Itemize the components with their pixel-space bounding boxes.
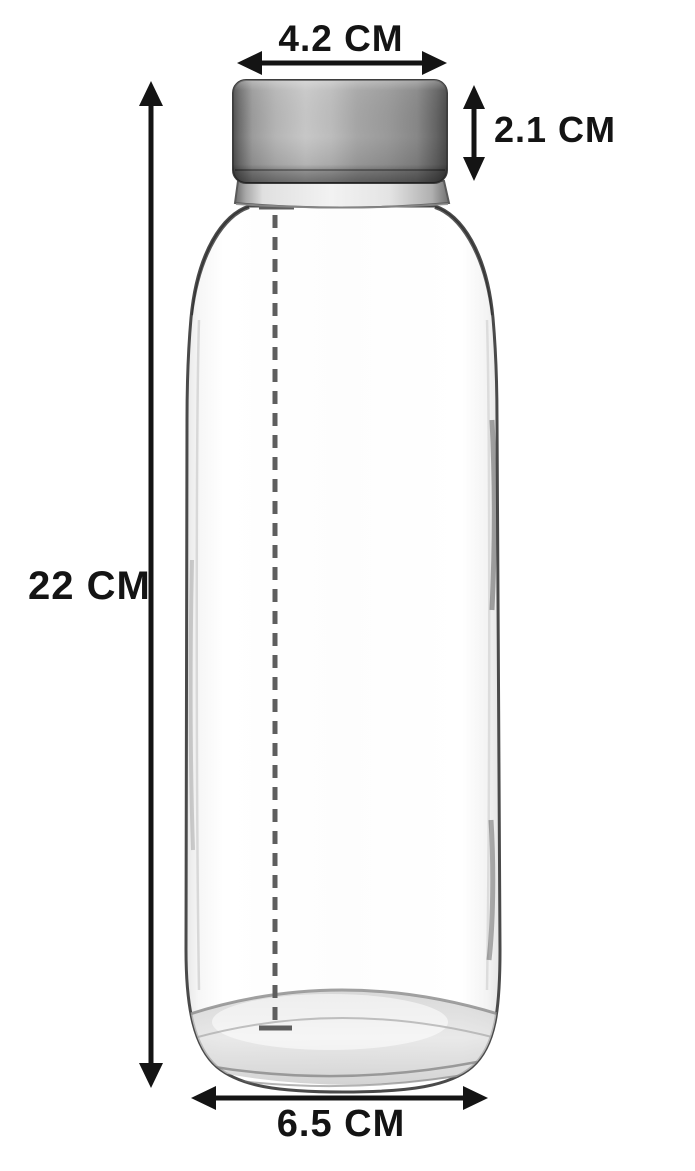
cap-width-label: 4.2 CM (278, 20, 403, 57)
cap-width-arrowhead-right (422, 51, 447, 75)
cap-height-arrowhead-bottom (463, 157, 485, 181)
base-width-arrowhead-left (191, 1086, 216, 1110)
bottle-body (186, 206, 500, 1092)
cap-width-arrowhead-left (237, 51, 262, 75)
product-dimension-diagram: 4.2 CM 2.1 CM 22 CM 6.5 CM (0, 0, 695, 1171)
bottle-cap (233, 80, 447, 183)
right-dark-streak-upper (492, 420, 494, 610)
base-width-arrowhead-right (463, 1086, 488, 1110)
cap-height-arrowhead-top (463, 85, 485, 109)
bottle-height-arrowhead-bottom (139, 1063, 163, 1088)
cap-height-label: 2.1 CM (494, 112, 616, 148)
bottle-neck-ring (235, 181, 449, 208)
cap-shading (233, 80, 447, 183)
cap-height-arrow (463, 85, 485, 181)
bottle-height-label: 22 CM (28, 566, 151, 606)
bottle-height-arrowhead-top (139, 81, 163, 106)
base-width-label: 6.5 CM (277, 1105, 405, 1143)
